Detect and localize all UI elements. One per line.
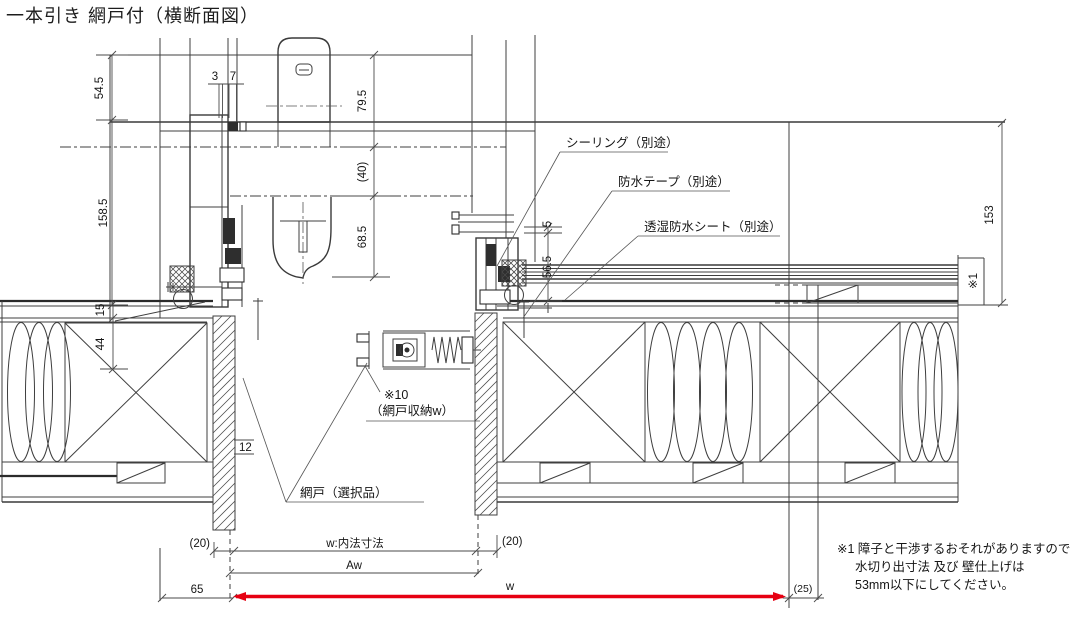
- callout-sealing: シーリング（別途）: [566, 135, 679, 150]
- dim-56-5: 56.5: [542, 256, 554, 278]
- dim-w-inner: w:内法寸法: [325, 536, 384, 550]
- red-arrow-left: [233, 592, 246, 601]
- dim-25: (25): [794, 583, 813, 595]
- red-arrow-right: [773, 592, 786, 601]
- door-leaf: [266, 38, 342, 284]
- dim-44: 44: [95, 337, 107, 350]
- callout-breathable-sheet: 透湿防水シート（別途）: [644, 219, 782, 234]
- dim-20-left: (20): [190, 538, 211, 550]
- dim-68-5: 68.5: [357, 226, 369, 248]
- screen-door-label: 網戸（選択品）: [300, 486, 388, 500]
- note-line2: 水切り出寸法 及び 壁仕上げは: [855, 559, 1024, 574]
- screen-door-mechanism: [357, 331, 481, 369]
- pocket-trim-right: [475, 313, 497, 578]
- red-w-dimension: [233, 592, 786, 601]
- dim-40: (40): [357, 162, 369, 183]
- screen-stow-label: （網戸収納w）: [370, 404, 454, 418]
- dimension-labels: 54.5 158.5 15 44 3 7 79.5 (40) 68.5 5 56…: [94, 71, 996, 596]
- dim-15: 15: [95, 304, 107, 317]
- footnote: ※1 障子と干渉するおそれがありますので 水切り出寸法 及び 壁仕上げは 53m…: [837, 541, 1070, 592]
- dim-65: 65: [191, 584, 204, 596]
- dim-158-5: 158.5: [98, 199, 110, 228]
- wall-note-ref: ※1: [968, 273, 980, 289]
- dim-7: 7: [230, 71, 236, 83]
- band-screw-left: [253, 298, 263, 340]
- dim-79-5: 79.5: [357, 90, 369, 112]
- note-line3: 53mm以下にしてください。: [855, 578, 1014, 592]
- right-jamb: [253, 212, 552, 340]
- dim-54-5: 54.5: [94, 77, 106, 99]
- dim-aw: Aw: [346, 560, 362, 572]
- callout-leaders: [243, 152, 780, 502]
- pocket-trim-left: [213, 316, 235, 600]
- screen-stow-ref: ※10: [384, 388, 408, 402]
- dim-3: 3: [212, 71, 218, 83]
- wall-band: [0, 301, 958, 502]
- section-drawing-canvas: 54.5 158.5 15 44 3 7 79.5 (40) 68.5 5 56…: [0, 0, 1083, 618]
- dim-5: 5: [542, 221, 554, 227]
- dim-w: w: [505, 581, 515, 593]
- dim-12: 12: [239, 442, 252, 454]
- callout-waterproof-tape: 防水テープ（別途）: [618, 174, 730, 189]
- dim-153: 153: [984, 205, 996, 224]
- cad-drawing-page: 一本引き 網戸付（横断面図）: [0, 0, 1083, 618]
- dimension-lines: [96, 51, 1006, 602]
- dim-20-right: (20): [502, 536, 523, 548]
- spring-coil: [432, 337, 461, 363]
- note-line1: ※1 障子と干渉するおそれがありますので: [837, 541, 1070, 556]
- left-jamb: [166, 115, 246, 309]
